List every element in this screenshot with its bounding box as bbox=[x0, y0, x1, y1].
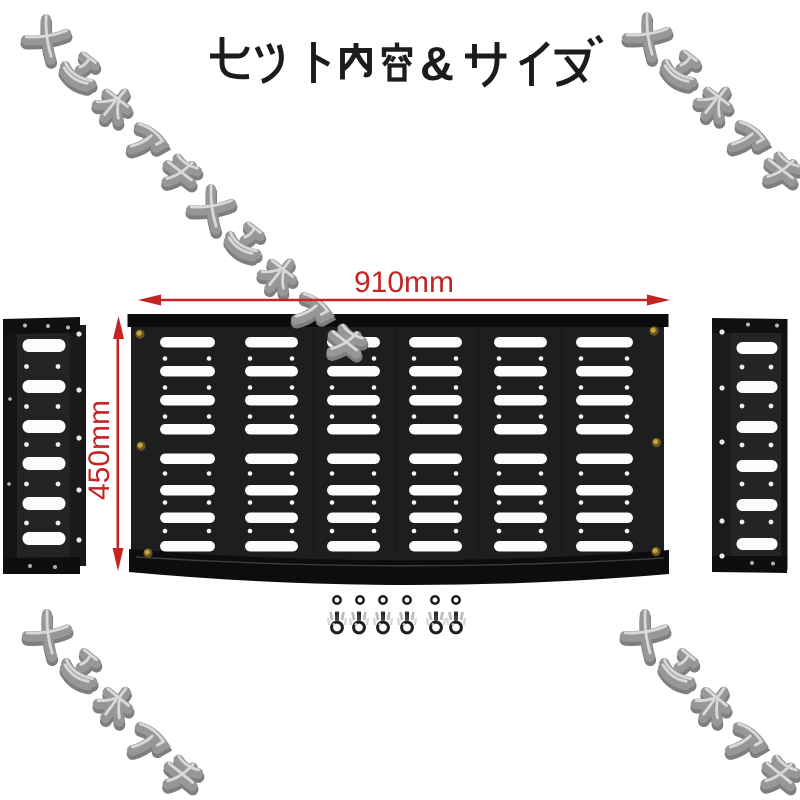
svg-text:910mm: 910mm bbox=[354, 266, 454, 299]
svg-text:450mm: 450mm bbox=[83, 400, 116, 500]
svg-text:&: & bbox=[420, 37, 454, 90]
